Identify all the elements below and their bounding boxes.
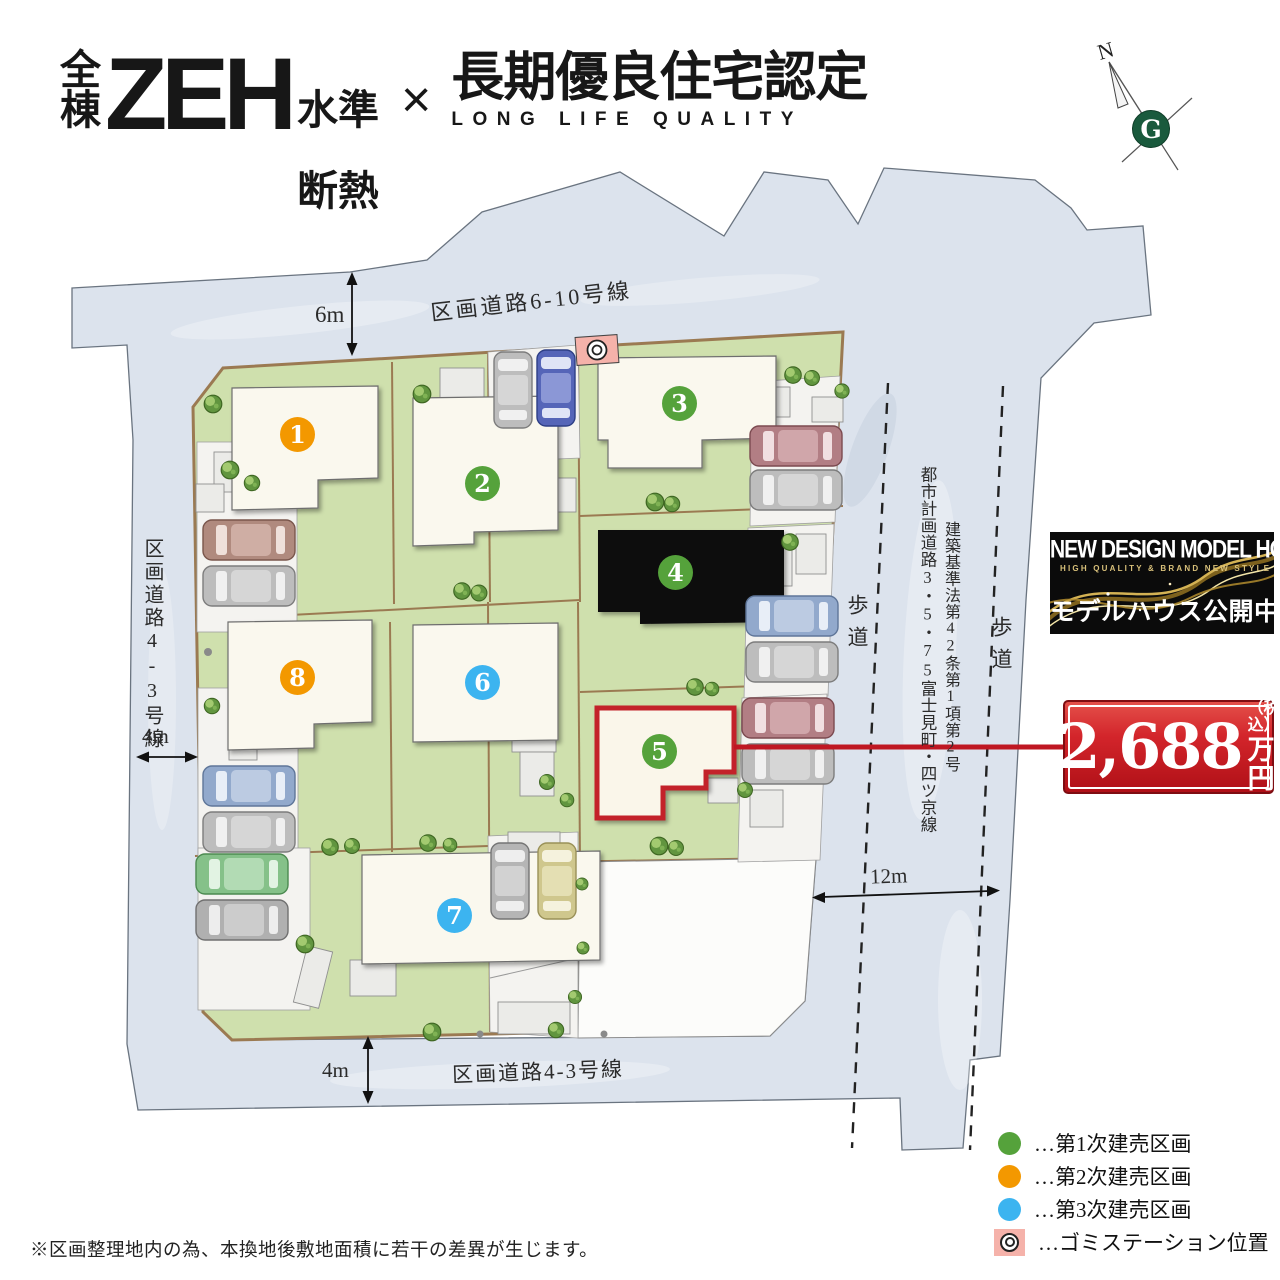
multiply-icon: × — [401, 50, 431, 150]
dimension-4m-left: 4m — [142, 724, 169, 749]
car — [203, 766, 295, 806]
dimension-4m-bottom: 4m — [322, 1058, 349, 1083]
header: 全 棟 ZEH 水準 断熱 × 長期優良住宅認定 LONG LIFE QUALI… — [60, 50, 867, 251]
lot-badge-2: 2 — [465, 466, 500, 501]
header-level-line2: 断熱 — [297, 171, 379, 211]
garbage-station-marker — [575, 335, 619, 366]
lot-number: 8 — [289, 663, 306, 692]
lot-badge-4: 4 — [658, 555, 693, 590]
lot-badge-5: 5 — [642, 734, 677, 769]
dimension-6m: 6m — [315, 302, 344, 328]
sidewalk-label-right: 歩道 — [986, 616, 1016, 680]
lot-number: 3 — [671, 389, 688, 418]
vacant-corner — [578, 858, 816, 1038]
car — [203, 520, 295, 560]
legend: …第1次建売区画 …第2次建売区画 …第3次建売区画 …ゴミステーション位置 — [998, 1131, 1269, 1254]
header-zeh: ZEH — [105, 50, 291, 140]
lot-number: 4 — [667, 558, 684, 587]
price-tax-note: （税込） — [1248, 701, 1280, 735]
road-label-left: 区画道路4-3号線 — [138, 538, 167, 751]
price-amount: 2,688 — [1057, 716, 1241, 778]
legend-item-phase2: …第2次建売区画 — [998, 1164, 1269, 1188]
car — [742, 698, 834, 738]
lot-badge-7: 7 — [437, 898, 472, 933]
car — [203, 812, 295, 852]
lot-number: 7 — [446, 901, 463, 930]
header-subtitle: LONG LIFE QUALITY — [451, 109, 867, 131]
footnote: ※区画整理地内の為、本換地後敷地面積に若干の差異が生じます。 — [30, 1236, 598, 1262]
legend-label: …第1次建売区画 — [1034, 1128, 1192, 1158]
lot-badge-8: 8 — [280, 660, 315, 695]
car — [742, 744, 834, 784]
compass: G N — [1095, 36, 1192, 170]
dimension-12m: 12m — [870, 863, 908, 889]
car — [746, 642, 838, 682]
car — [750, 470, 842, 510]
model-house-tagline: HIGH QUALITY & BRAND NEW STYLE — [1060, 564, 1271, 573]
road-label-building-law: 建築基準法第42条第1項第2号 — [938, 521, 962, 773]
compass-logo-letter: G — [1140, 115, 1161, 144]
legend-item-garbage: …ゴミステーション位置 — [998, 1230, 1269, 1254]
car — [196, 854, 288, 894]
lot-badge-3: 3 — [662, 386, 697, 421]
legend-label: …第2次建売区画 — [1034, 1161, 1192, 1191]
price-unit-block: （税込） 万円 — [1248, 701, 1280, 793]
phase2-dot-icon — [998, 1165, 1021, 1188]
model-house-badge[interactable]: NEW DESIGN MODEL HOUSE HIGH QUALITY & BR… — [1050, 532, 1274, 634]
car — [537, 350, 575, 426]
car — [491, 843, 529, 919]
road-label-bottom: 区画道路4-3号線 — [452, 1053, 625, 1089]
car — [746, 596, 838, 636]
lot-badge-1: 1 — [280, 417, 315, 452]
phase1-dot-icon — [998, 1132, 1021, 1155]
header-title-block: 長期優良住宅認定 LONG LIFE QUALITY — [451, 50, 867, 131]
site-plan-flyer: G N 全 棟 ZEH 水準 断熱 × 長期優良住宅認定 LONG LIFE Q… — [0, 0, 1280, 1280]
car — [494, 352, 532, 428]
car — [196, 900, 288, 940]
legend-item-phase3: …第3次建売区画 — [998, 1197, 1269, 1221]
model-house-status: モデルハウス公開中 — [1050, 592, 1274, 628]
garbage-station-icon — [994, 1229, 1025, 1256]
car — [203, 566, 295, 606]
header-zeh-level: 水準 断熱 — [297, 50, 379, 251]
price-unit: 万円 — [1248, 736, 1280, 793]
car — [750, 426, 842, 466]
lot-number: 6 — [474, 668, 491, 697]
lot-badge-6: 6 — [465, 665, 500, 700]
north-arrow-icon — [1109, 62, 1128, 108]
road-label-planning: 都市計画道路3・5・75富士見町・四ツ京線 — [915, 466, 939, 833]
compass-north-label: N — [1095, 36, 1117, 64]
price-tag[interactable]: 2,688 （税込） 万円 — [1063, 700, 1274, 794]
lot-number: 5 — [651, 737, 668, 766]
header-all-units: 全 棟 — [60, 50, 101, 130]
model-house-title: NEW DESIGN MODEL HOUSE — [1050, 536, 1274, 565]
lot-number: 1 — [289, 420, 306, 449]
lot-number: 2 — [474, 469, 491, 498]
header-title: 長期優良住宅認定 — [451, 50, 867, 106]
legend-label: …ゴミステーション位置 — [1038, 1227, 1269, 1257]
phase3-dot-icon — [998, 1198, 1021, 1221]
sidewalk-label-left: 歩道 — [842, 594, 872, 658]
header-level-line1: 水準 — [297, 90, 379, 130]
legend-label: …第3次建売区画 — [1034, 1194, 1192, 1224]
legend-item-phase1: …第1次建売区画 — [998, 1131, 1269, 1155]
car — [538, 843, 576, 919]
